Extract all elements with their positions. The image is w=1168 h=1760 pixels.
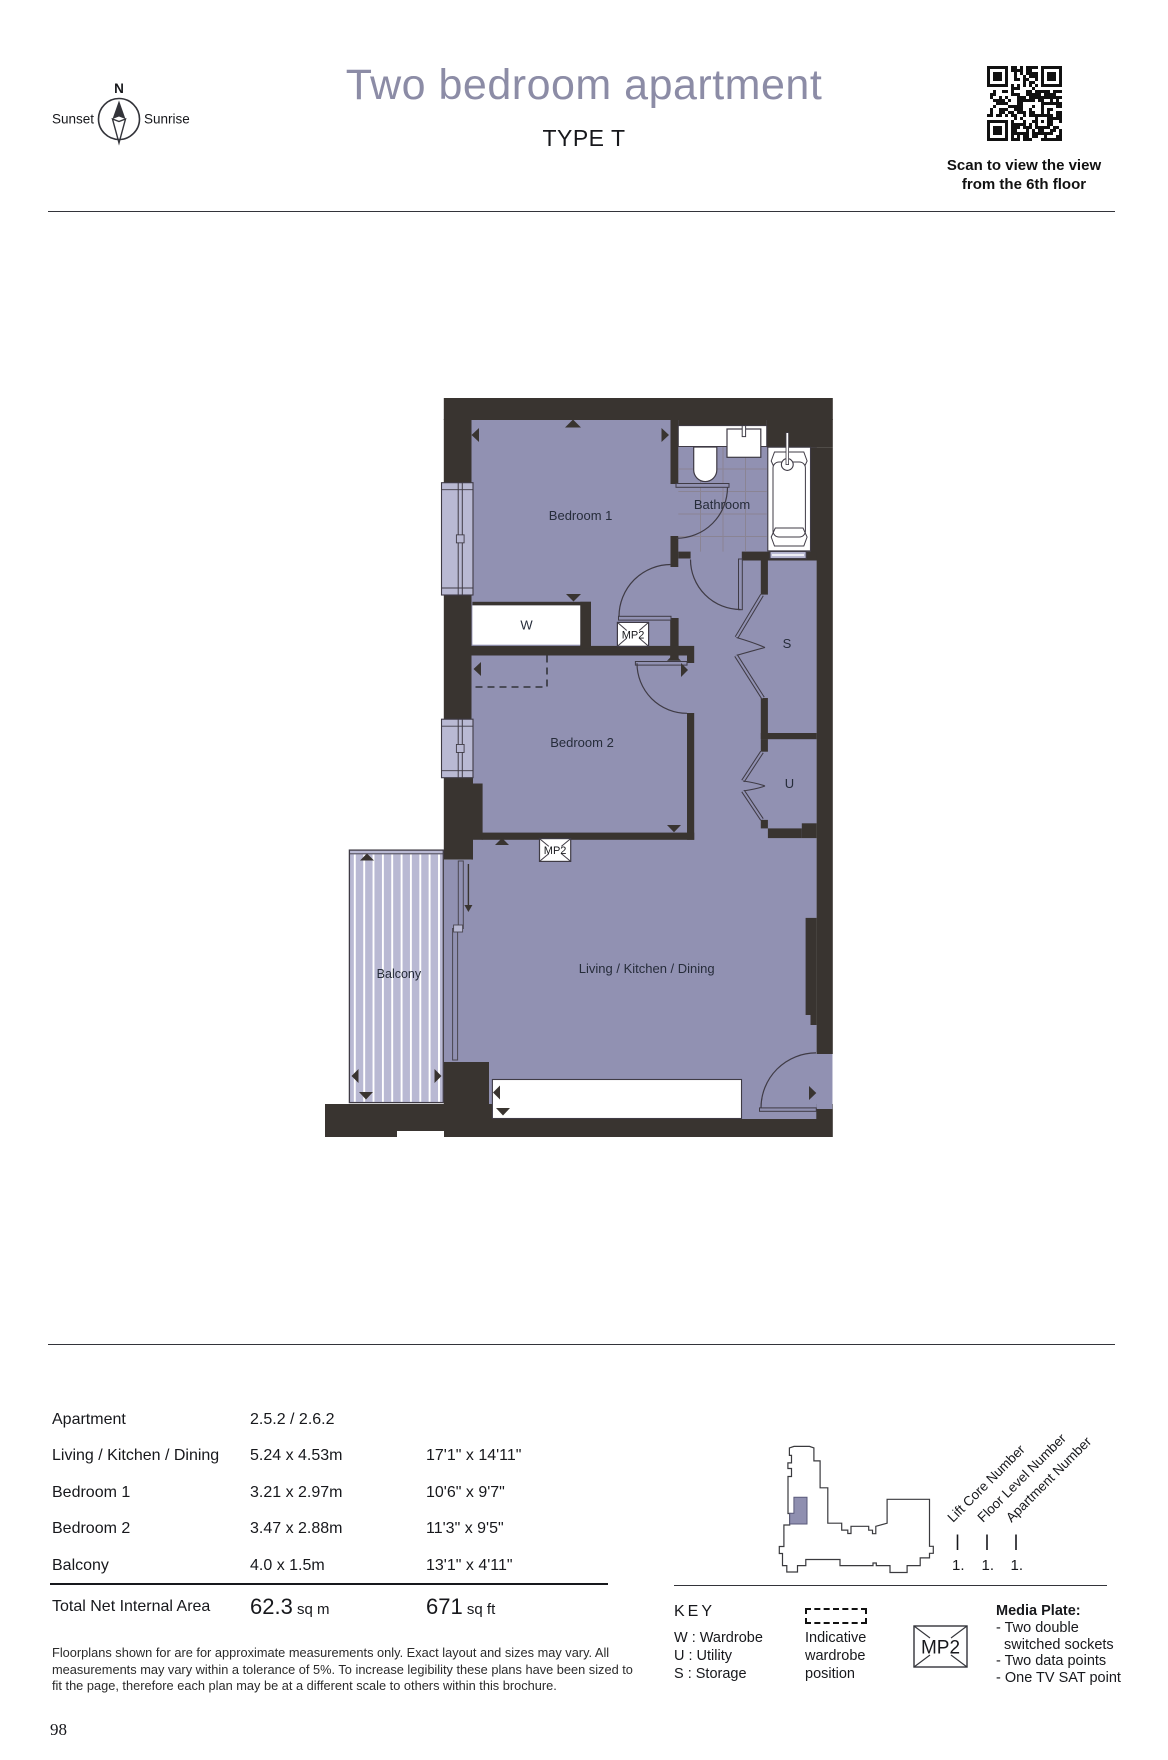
svg-text:1.: 1. [1011,1557,1024,1574]
svg-text:1.: 1. [952,1557,965,1574]
svg-text:MP2: MP2 [921,1638,960,1659]
svg-text:1.: 1. [982,1557,995,1574]
